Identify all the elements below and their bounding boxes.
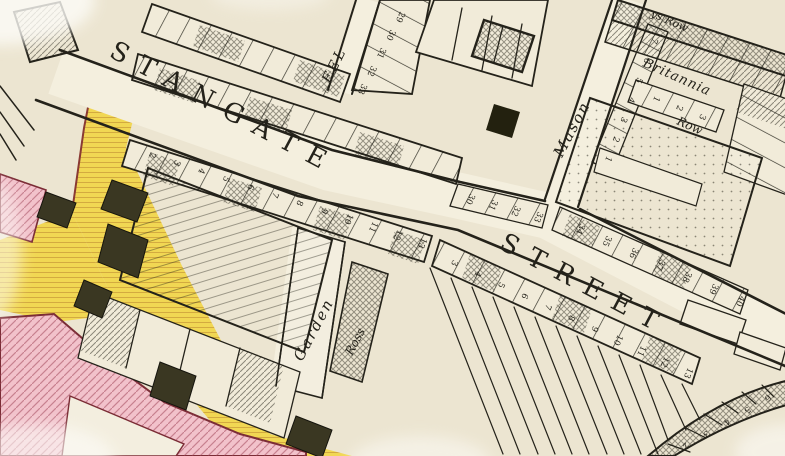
map-svg: STANGATE STREET FEL Mason Britannia Row …	[0, 0, 785, 456]
map-canvas: STANGATE STREET FEL Mason Britannia Row …	[0, 0, 785, 456]
